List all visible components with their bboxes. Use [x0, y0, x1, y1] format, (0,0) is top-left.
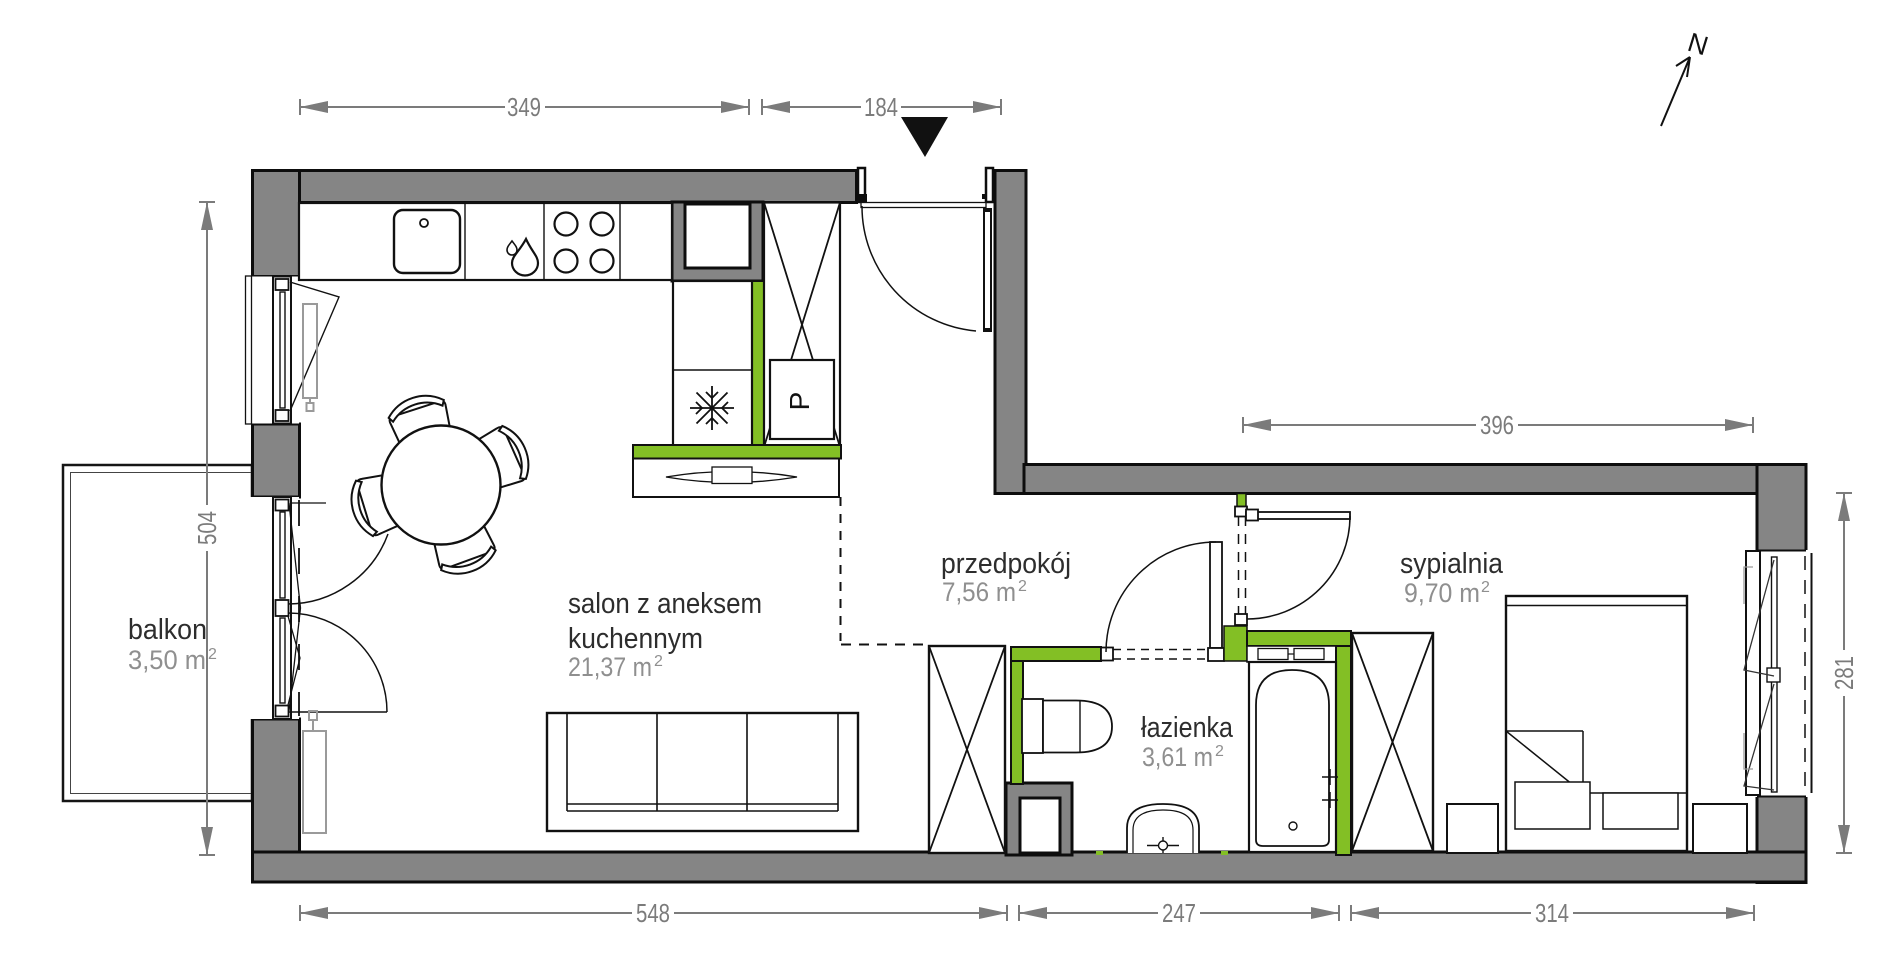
svg-text:balkon: balkon: [128, 614, 207, 646]
svg-text:3,50 m: 3,50 m: [128, 645, 206, 675]
svg-text:przedpokój: przedpokój: [941, 548, 1071, 580]
svg-text:548: 548: [636, 898, 670, 928]
svg-text:9,70 m: 9,70 m: [1404, 578, 1480, 608]
svg-text:2: 2: [1481, 579, 1490, 596]
svg-text:21,37 m: 21,37 m: [568, 652, 652, 682]
svg-text:396: 396: [1480, 410, 1514, 440]
svg-text:184: 184: [864, 92, 898, 122]
svg-text:salon z aneksem: salon z aneksem: [568, 588, 762, 620]
svg-text:2: 2: [1215, 743, 1224, 760]
svg-text:P: P: [784, 392, 815, 411]
svg-text:349: 349: [507, 92, 541, 122]
svg-text:247: 247: [1162, 898, 1196, 928]
svg-text:kuchennym: kuchennym: [568, 623, 703, 655]
svg-text:281: 281: [1829, 656, 1859, 690]
svg-text:2: 2: [1018, 578, 1027, 595]
svg-text:2: 2: [208, 646, 217, 663]
svg-text:314: 314: [1535, 898, 1569, 928]
svg-text:3,61 m: 3,61 m: [1142, 742, 1213, 772]
svg-text:504: 504: [192, 511, 222, 545]
svg-text:7,56 m: 7,56 m: [942, 577, 1016, 607]
svg-text:2: 2: [654, 653, 663, 670]
svg-text:łazienka: łazienka: [1141, 712, 1233, 744]
svg-text:sypialnia: sypialnia: [1400, 548, 1503, 580]
